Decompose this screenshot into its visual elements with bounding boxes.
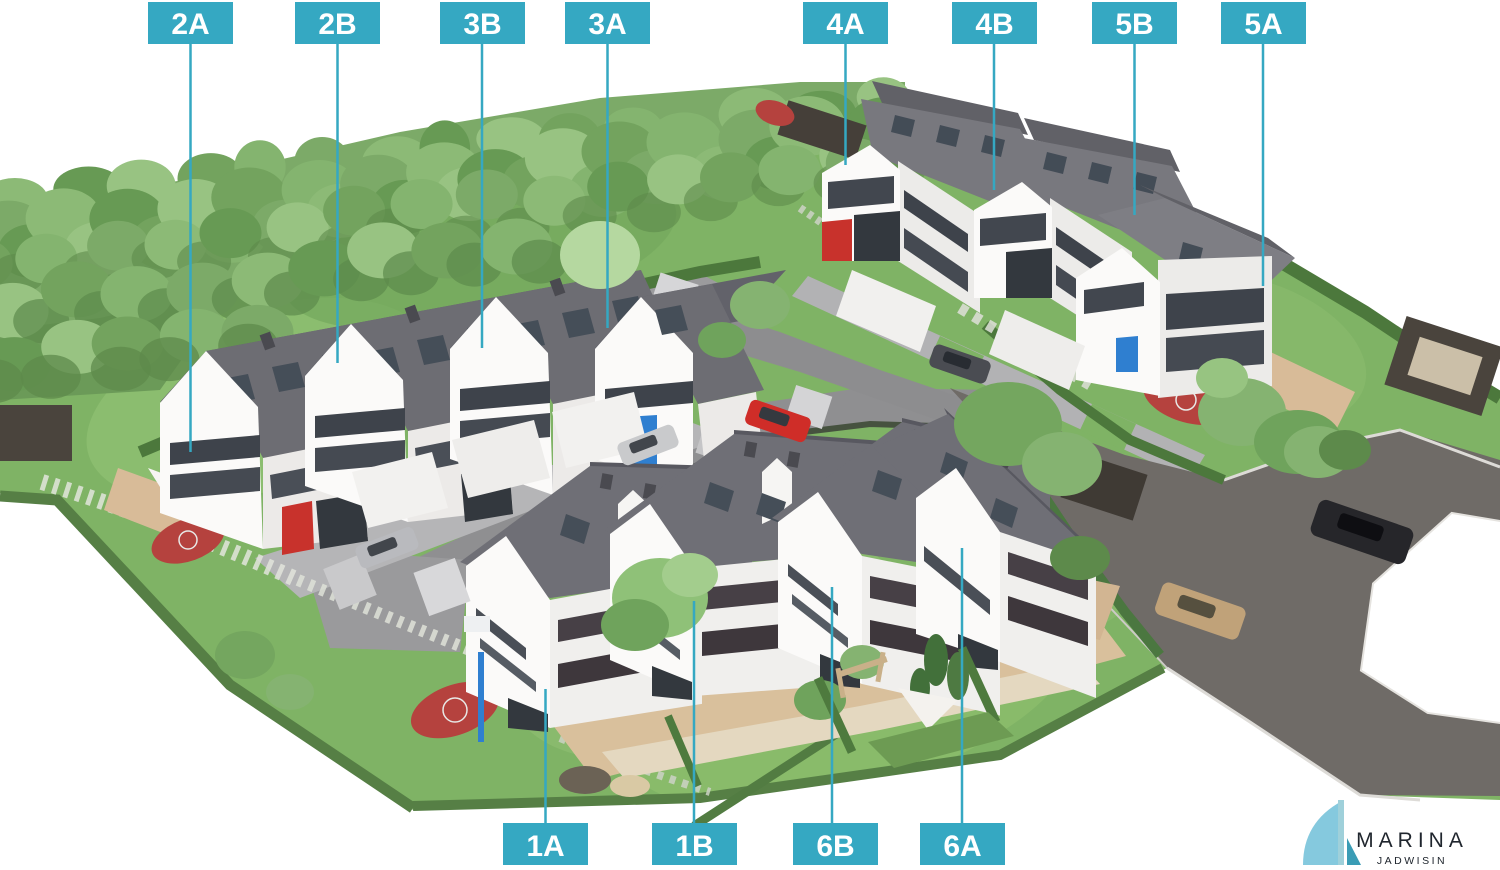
svg-text:MARINA: MARINA bbox=[1356, 829, 1468, 852]
svg-text:2A: 2A bbox=[171, 8, 209, 41]
svg-text:6A: 6A bbox=[943, 830, 981, 863]
svg-text:1B: 1B bbox=[675, 830, 713, 863]
svg-text:4A: 4A bbox=[826, 8, 864, 41]
svg-text:3A: 3A bbox=[588, 8, 626, 41]
svg-text:2B: 2B bbox=[318, 8, 356, 41]
svg-text:5B: 5B bbox=[1115, 8, 1153, 41]
svg-text:1A: 1A bbox=[526, 830, 564, 863]
svg-text:JADWISIN: JADWISIN bbox=[1377, 855, 1447, 865]
svg-text:6B: 6B bbox=[816, 830, 854, 863]
svg-text:4B: 4B bbox=[975, 8, 1013, 41]
svg-text:5A: 5A bbox=[1244, 8, 1282, 41]
svg-text:3B: 3B bbox=[463, 8, 501, 41]
